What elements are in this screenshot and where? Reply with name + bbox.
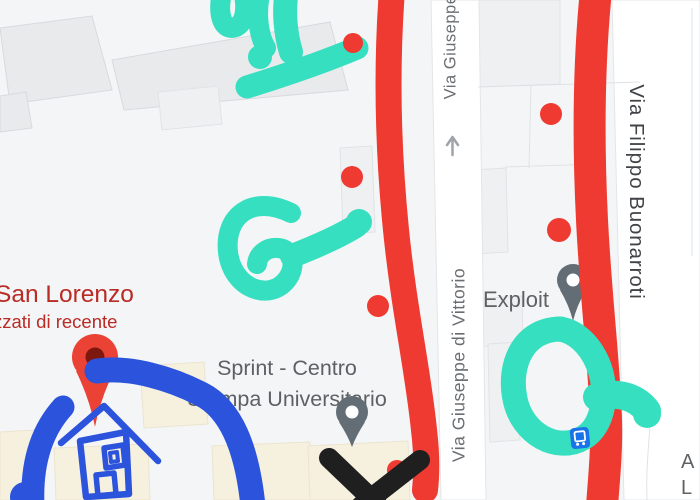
annotation-overlay [0, 0, 700, 500]
blue-drawing-annotation [10, 370, 253, 500]
transit-station-icon[interactable] [569, 427, 590, 450]
map-canvas[interactable]: Via Giuseppe Via Giuseppe di Vittorio Vi… [0, 0, 700, 500]
black-x-annotation [329, 458, 420, 500]
red-line-annotations [389, 0, 607, 500]
blue-house-drawing [61, 406, 158, 497]
red-dot-annotations [341, 33, 571, 480]
